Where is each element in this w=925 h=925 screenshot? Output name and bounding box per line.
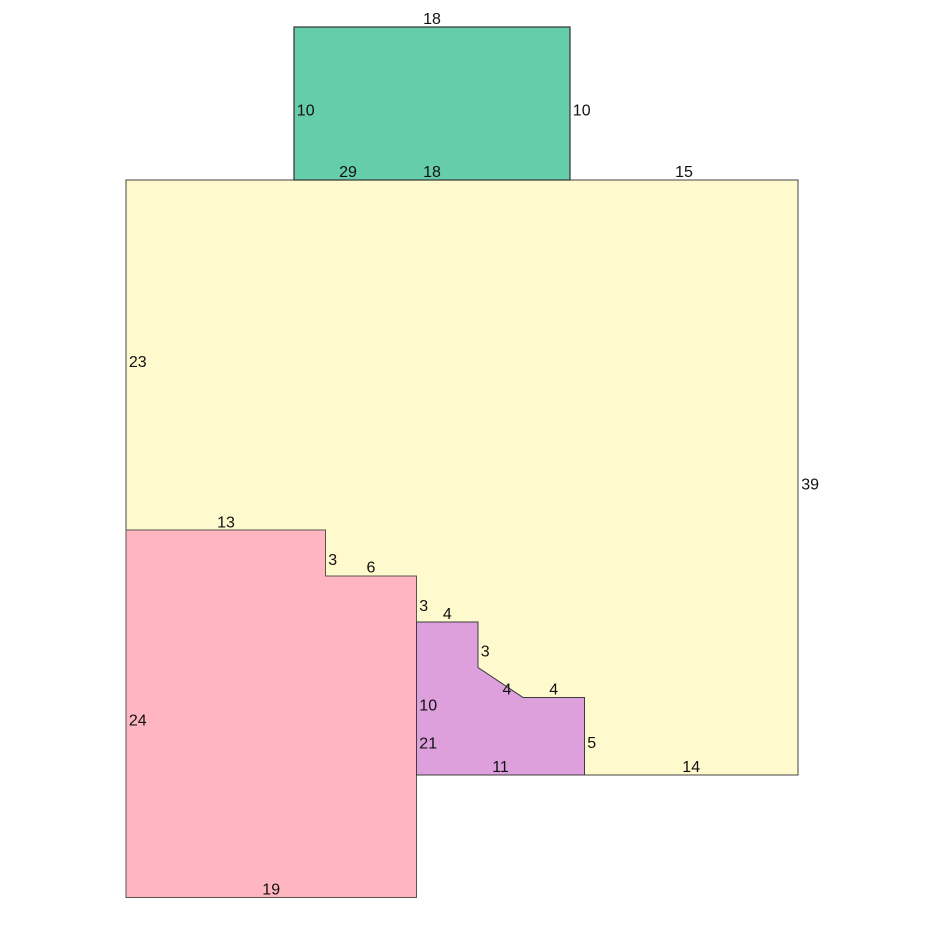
svg-text:6: 6 bbox=[367, 560, 376, 577]
svg-text:10: 10 bbox=[573, 102, 591, 119]
svg-text:21: 21 bbox=[419, 736, 437, 753]
svg-text:18: 18 bbox=[423, 164, 441, 181]
svg-text:24: 24 bbox=[129, 713, 147, 730]
svg-text:29: 29 bbox=[339, 164, 357, 181]
svg-text:4: 4 bbox=[549, 681, 558, 698]
svg-text:5: 5 bbox=[587, 735, 596, 752]
svg-text:13: 13 bbox=[217, 514, 235, 531]
svg-text:18: 18 bbox=[423, 11, 441, 28]
svg-text:39: 39 bbox=[801, 476, 819, 493]
svg-text:10: 10 bbox=[297, 102, 315, 119]
svg-text:23: 23 bbox=[129, 354, 147, 371]
svg-text:11: 11 bbox=[492, 759, 509, 776]
svg-text:10: 10 bbox=[419, 697, 437, 714]
svg-text:4: 4 bbox=[503, 681, 512, 698]
svg-text:14: 14 bbox=[682, 759, 700, 776]
svg-text:15: 15 bbox=[675, 164, 693, 181]
svg-text:4: 4 bbox=[443, 606, 452, 623]
svg-text:3: 3 bbox=[481, 644, 490, 661]
svg-text:3: 3 bbox=[419, 598, 428, 615]
svg-text:19: 19 bbox=[262, 881, 280, 898]
svg-text:3: 3 bbox=[328, 552, 337, 569]
